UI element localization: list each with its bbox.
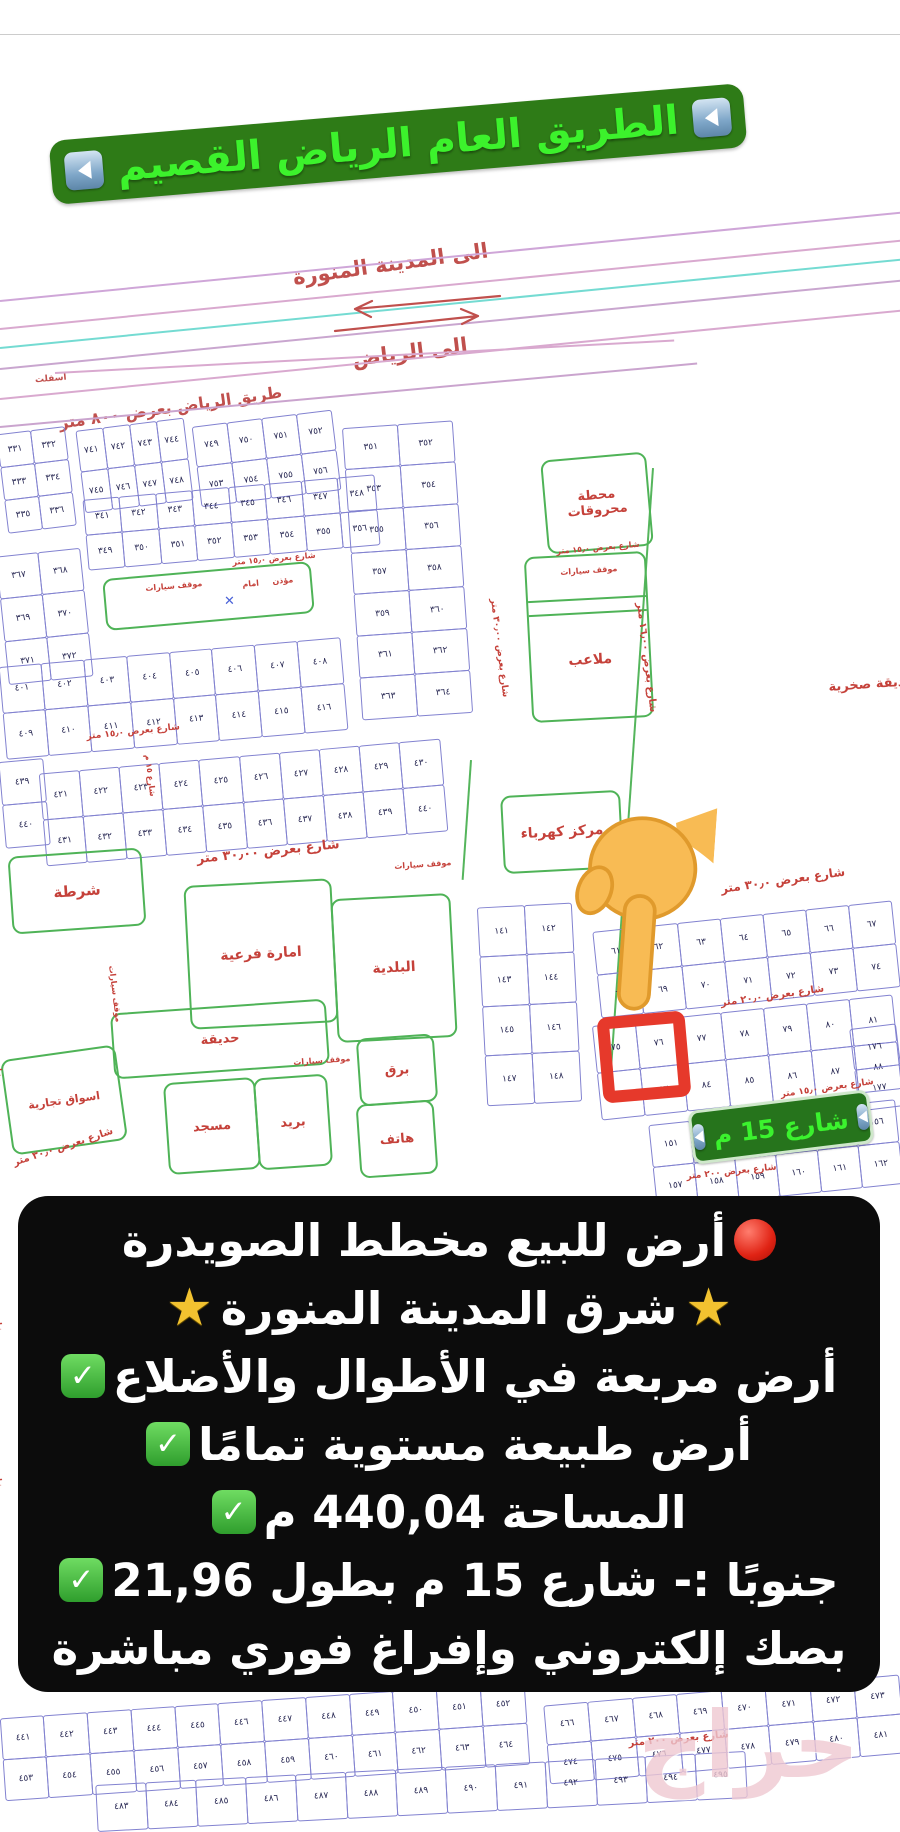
plot-cell: ٤٠٤ — [126, 652, 174, 703]
ad-line-6: جنوبًا :- شارع 15 م بطول 21,96✓ — [18, 1546, 880, 1614]
facility-label-post-office: بريد — [255, 1076, 331, 1169]
plot-cell: ٣٣٤ — [33, 459, 72, 497]
plot-cell: ١٧٦ — [849, 1023, 900, 1070]
plot-cell: ٣٥٨ — [405, 545, 464, 592]
plot-cell: ٤٠٧ — [254, 640, 302, 691]
plot-cell: ١٤٧ — [484, 1053, 535, 1106]
facility-municipality: البلدية — [330, 893, 457, 1043]
plot-cell: ٣٦٤ — [414, 670, 473, 717]
facility-label-police: شرطة — [10, 850, 145, 933]
plot-cell: ٤٨٤ — [145, 1779, 198, 1829]
plot-cell: ٣٤٤ — [191, 487, 231, 526]
plot-cell: ٤٩١ — [494, 1761, 547, 1811]
plot-cell: ٤١٤ — [215, 690, 263, 741]
ad-text: جنوبًا :- شارع 15 م بطول 21,96 — [111, 1554, 838, 1607]
plot-cell: ٣٧٠ — [41, 590, 88, 638]
plot-cell: ٣٥٥ — [303, 512, 343, 551]
facility-garden: حديقة — [110, 999, 330, 1080]
plot-cell: ٣٣٣ — [0, 463, 39, 501]
plot-cell: ٣٣٦ — [37, 492, 76, 530]
plot-cell: ٣٤٦ — [264, 480, 304, 519]
plot-cell: ٤٣٤ — [162, 805, 207, 855]
plot-cell: ١٤٢ — [523, 902, 574, 955]
plot-cell: ٣٥٤ — [399, 462, 458, 509]
check-icon: ✓ — [146, 1422, 190, 1466]
plot-cell: ٤١١ — [87, 701, 135, 752]
ad-line-4: أرض طبيعة مستوية تمامًا ✓ — [18, 1410, 880, 1478]
plot-cell: ٣٥٩ — [353, 590, 412, 637]
plot-cell: ٧٤ — [852, 943, 900, 991]
plot-cell: ٣٤٨ — [336, 474, 376, 513]
plot-cell: ٣٣٥ — [4, 496, 43, 534]
plot-cell: ٣٤٩ — [85, 531, 125, 570]
plot-cell: ٤٤٣ — [87, 1709, 135, 1754]
plot-cell: ٤٠٣ — [83, 655, 131, 706]
plot-cell: ٣٥٤ — [267, 515, 307, 554]
plot-cell: ٨٠ — [806, 998, 855, 1050]
plot-cell: ٤٦٦ — [543, 1701, 592, 1745]
plot-cell: ٤٤٦ — [217, 1700, 265, 1745]
plot-cell: ٣٦٨ — [37, 547, 84, 595]
plot-cell: ٤٢٨ — [319, 745, 364, 795]
plot-cell: ٤٩٢ — [544, 1758, 597, 1808]
ad-text: أرض طبيعة مستوية تمامًا — [198, 1418, 752, 1471]
plot-cell: ٦٦ — [805, 904, 853, 952]
facility-police: شرطة — [7, 847, 146, 934]
plot-cell: ٤٠١ — [0, 663, 46, 714]
ad-line-5: المساحة 440,04 م✓ — [18, 1478, 880, 1546]
plot-cell: ٤١٦ — [300, 683, 348, 734]
plot-cell: ٤١٣ — [172, 694, 220, 745]
plot-cell: ٣٤٣ — [155, 490, 195, 529]
plot-cell: ٤٣٨ — [323, 791, 368, 841]
facility-post-office: بريد — [253, 1074, 333, 1171]
plot-cell: ٣٤٧ — [300, 477, 340, 516]
check-icon: ✓ — [59, 1558, 103, 1602]
plot-cell: ٣٦٢ — [411, 628, 470, 675]
plot-cell: ٤٦٣ — [439, 1725, 487, 1770]
street-label: شارع بعرض ٣٠٫٠٠ متر — [488, 598, 510, 698]
plot-cell: ٣٦٣ — [359, 673, 418, 720]
plot-cell: ٤٢٥ — [198, 756, 243, 806]
plot-cell: ٤٨٥ — [195, 1777, 248, 1827]
plot-grid: ٣٥١٣٥٢٣٥٣٣٥٤٣٥٥٣٥٦٣٥٧٣٥٨٣٥٩٣٦٠٣٦١٣٦٢٣٦٣٣… — [342, 421, 472, 720]
blue-left-arrow-icon — [692, 1123, 706, 1150]
plot-cell: ٤٥٠ — [392, 1687, 440, 1732]
plot-cell: ٣٤٢ — [118, 493, 158, 532]
plot-cell: ٦٤ — [720, 913, 768, 961]
ad-text: أرض مربعة في الأطوال والأضلاع — [113, 1350, 837, 1403]
plot-cell: ٤٨٦ — [245, 1774, 298, 1824]
plot-cell: ٧٨ — [720, 1007, 769, 1059]
ad-line-2: ★شرق المدينة المنورة ★ — [18, 1274, 880, 1342]
plot-cell: ٤٦٧ — [587, 1697, 636, 1741]
red-circle-icon — [734, 1219, 776, 1261]
plot-cell: ٤٤٩ — [348, 1690, 396, 1735]
plot-cell: ٤٨١ — [856, 1713, 900, 1757]
land-ad-image: { "banner": { "text": "الطريق العام الري… — [0, 0, 900, 1784]
plot-cell: ٣٦٠ — [408, 586, 467, 633]
plot-cell: ٤١٠ — [45, 705, 93, 756]
check-icon: ✓ — [61, 1354, 105, 1398]
plot-cell: ١٤٨ — [531, 1050, 582, 1103]
plot-cell: ٤٨٣ — [95, 1782, 148, 1832]
facility-label-telephone: هاتف — [358, 1102, 437, 1177]
ad-text: بصك إلكتروني وإفراغ فوري مباشرة — [52, 1622, 847, 1675]
facility-label-parking-playground: ملاعب — [526, 553, 652, 721]
facility-label-municipality: البلدية — [332, 895, 455, 1041]
facility-label-fuel-station: محطة محروقات — [542, 454, 651, 553]
plot-cell: ١٥٩ — [734, 1153, 781, 1200]
plot-cell: ٣٤١ — [82, 496, 122, 535]
plot-cell: ٣٥٦ — [340, 509, 380, 548]
plot-grid: ٤٣٩٤٤٠ — [0, 758, 50, 848]
plot-cell: ١٤٣ — [479, 954, 530, 1007]
ad-text: أرض للبيع مخطط الصويدرة — [122, 1214, 726, 1267]
street-label: موقف سيارات — [107, 965, 123, 1023]
plot-cell: ٣٥٦ — [402, 503, 461, 550]
plot-cell: ١٤١ — [476, 905, 527, 958]
street-label: موقف سيارات — [394, 858, 452, 871]
plot-cell: ٣٥٢ — [194, 521, 234, 560]
facility-telegraph: برق — [356, 1033, 439, 1106]
plot-cell: ٣٦٧ — [0, 552, 42, 600]
plot-cell: ٤٤٤ — [130, 1706, 178, 1751]
plot-cell: ٤٣٦ — [242, 798, 287, 848]
plot-cell: ٤٠٢ — [41, 659, 89, 710]
plot-cell: ٣٥٣ — [230, 518, 270, 557]
plot-cell: ٤٤٥ — [174, 1703, 222, 1748]
boundary-line — [462, 760, 472, 880]
facility-mosque-annex — [102, 561, 315, 631]
plot-cell: ٣٥٠ — [121, 528, 161, 567]
plot-cell: ٤٠٥ — [168, 648, 216, 699]
facility-label-mosque: مسجد — [165, 1079, 259, 1173]
star-icon: ★ — [685, 1282, 732, 1334]
street-label: حديقة صخرية — [828, 674, 900, 695]
ad-line-1: أرض للبيع مخطط الصويدرة — [18, 1206, 880, 1274]
plot-cell: ٤٨٩ — [394, 1766, 447, 1816]
street-label: مؤذن — [272, 575, 294, 586]
plot-cell: ٤٤٨ — [305, 1693, 353, 1738]
plot-cell: ٤١٥ — [258, 686, 306, 737]
plot-cell: ٤٣٧ — [282, 794, 327, 844]
plot-cell: ٤٤٠ — [403, 784, 448, 834]
plot-cell: ٤٣٠ — [399, 738, 444, 788]
plot-cell: ٤٦٤ — [482, 1722, 530, 1767]
facility-parking-playground: ملاعب — [524, 551, 655, 723]
plot-cell: ٦٥ — [762, 909, 810, 957]
plot-cell: ٤٢٩ — [359, 742, 404, 792]
check-icon: ✓ — [212, 1490, 256, 1534]
plot-cell: ٤٠٦ — [211, 644, 259, 695]
plot-cell: ٤٥٣ — [2, 1756, 50, 1801]
plot-cell: ٤٢٢ — [78, 766, 123, 816]
plot-cell: ٤٤٠ — [2, 801, 51, 849]
plot-cell: ٧٩ — [763, 1003, 812, 1055]
plot-cell: ٤٢٧ — [278, 749, 323, 799]
plot-cell: ٤٩٠ — [444, 1764, 497, 1814]
plot-cell: ٤٢٦ — [238, 752, 283, 802]
plot-cell: ٤٢٣ — [118, 763, 163, 813]
plot-cell: ٤٨٧ — [294, 1771, 347, 1821]
facility-mosque: مسجد — [163, 1077, 261, 1175]
plot-cell: ٣٥٧ — [350, 549, 409, 596]
street-label: شارع — [0, 1312, 4, 1334]
plot-cell: ٤٣٥ — [202, 801, 247, 851]
direction-arrows — [0, 0, 900, 460]
plot-cell: ٤٤٢ — [43, 1712, 91, 1757]
plot-cell: ١٥١ — [648, 1120, 695, 1167]
plot-cell: ٣٦١ — [356, 632, 415, 679]
plot-cell: ٤٣٩ — [0, 758, 46, 806]
plot-cell: ٨٥ — [725, 1054, 774, 1106]
plot-cell: ٤٥٤ — [46, 1753, 94, 1798]
ad-line-7: بصك إلكتروني وإفراغ فوري مباشرة — [18, 1614, 880, 1682]
plot-cell: ١٦١ — [817, 1145, 864, 1192]
ad-text: المساحة 440,04 م — [264, 1486, 687, 1539]
plot-cell: ١٦٢ — [858, 1140, 900, 1187]
plot-cell: ٤٢٤ — [158, 759, 203, 809]
plot-cell: ١٤٥ — [482, 1003, 533, 1056]
blue-left-arrow-icon — [856, 1103, 870, 1130]
haraj-watermark: حراج — [638, 1692, 859, 1799]
facility-commercial-markets: اسواق تجارية — [0, 1044, 128, 1155]
plot-cell: ٤٠٨ — [296, 637, 344, 688]
plot-cell: ٤٣٩ — [363, 787, 408, 837]
street-15m-label: شارع 15 م — [712, 1104, 851, 1149]
plot-cell: ٣٤٥ — [227, 483, 267, 522]
pointing-down-hand-icon — [564, 793, 717, 1027]
plot-cell: ٤٠٩ — [2, 709, 50, 760]
plot-cell: ٤٤١ — [0, 1715, 47, 1760]
street-label: شارع — [0, 1468, 4, 1490]
ad-text: شرق المدينة المنورة — [221, 1282, 677, 1335]
plot-cell: ٣٦٩ — [0, 594, 47, 642]
street-label: شارع بعرض ٣٠٫٠ متر — [720, 865, 846, 896]
plot-cell: ٣٥١ — [158, 525, 198, 564]
facility-label-telegraph: برق — [358, 1035, 436, 1104]
plot-cell: ٤٤٧ — [261, 1697, 309, 1742]
star-icon: ★ — [166, 1282, 213, 1334]
facility-telephone: هاتف — [356, 1099, 439, 1178]
plot-cell: ١٦٠ — [775, 1149, 822, 1196]
ad-text-overlay: أرض للبيع مخطط الصويدرة★شرق المدينة المن… — [18, 1196, 880, 1692]
street-label: امام — [242, 579, 259, 589]
plot-cell: ٤٨٨ — [344, 1769, 397, 1819]
plot-cell: ٦٧ — [848, 900, 896, 948]
ad-line-3: أرض مربعة في الأطوال والأضلاع✓ — [18, 1342, 880, 1410]
